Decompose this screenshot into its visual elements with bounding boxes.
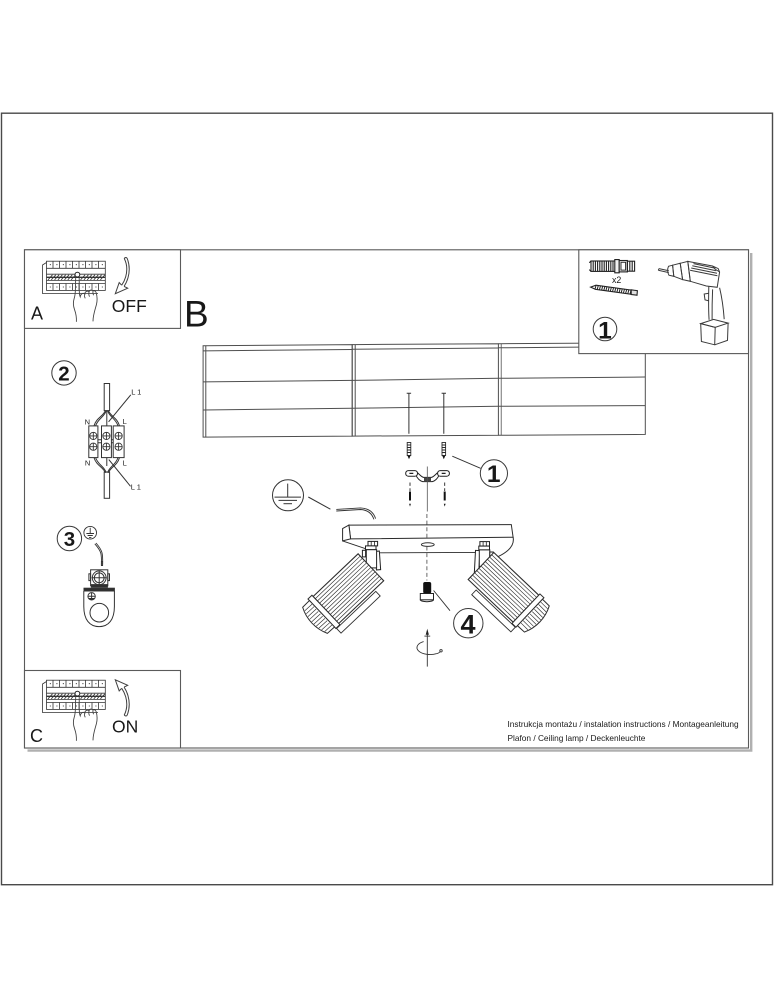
svg-text:N: N (85, 459, 90, 468)
svg-text:2: 2 (58, 362, 69, 385)
svg-text:3: 3 (64, 528, 75, 551)
svg-text:C: C (30, 726, 43, 746)
svg-text:B: B (184, 294, 209, 335)
svg-text:Plafon / Ceiling lamp / Decken: Plafon / Ceiling lamp / Deckenleuchte (508, 733, 646, 743)
svg-text:4: 4 (460, 610, 475, 640)
svg-text:L: L (123, 459, 127, 468)
svg-text:x2: x2 (612, 275, 621, 285)
svg-text:1: 1 (487, 461, 501, 488)
svg-text:A: A (31, 303, 43, 323)
svg-text:L: L (123, 417, 127, 426)
svg-text:L 1: L 1 (131, 483, 141, 492)
svg-text:ON: ON (112, 717, 138, 737)
svg-text:Instrukcja montażu / instalati: Instrukcja montażu / instalation instruc… (508, 719, 739, 729)
svg-text:1: 1 (598, 317, 612, 344)
svg-text:L 1: L 1 (131, 388, 141, 397)
svg-text:OFF: OFF (112, 296, 147, 316)
svg-text:N: N (85, 418, 90, 427)
